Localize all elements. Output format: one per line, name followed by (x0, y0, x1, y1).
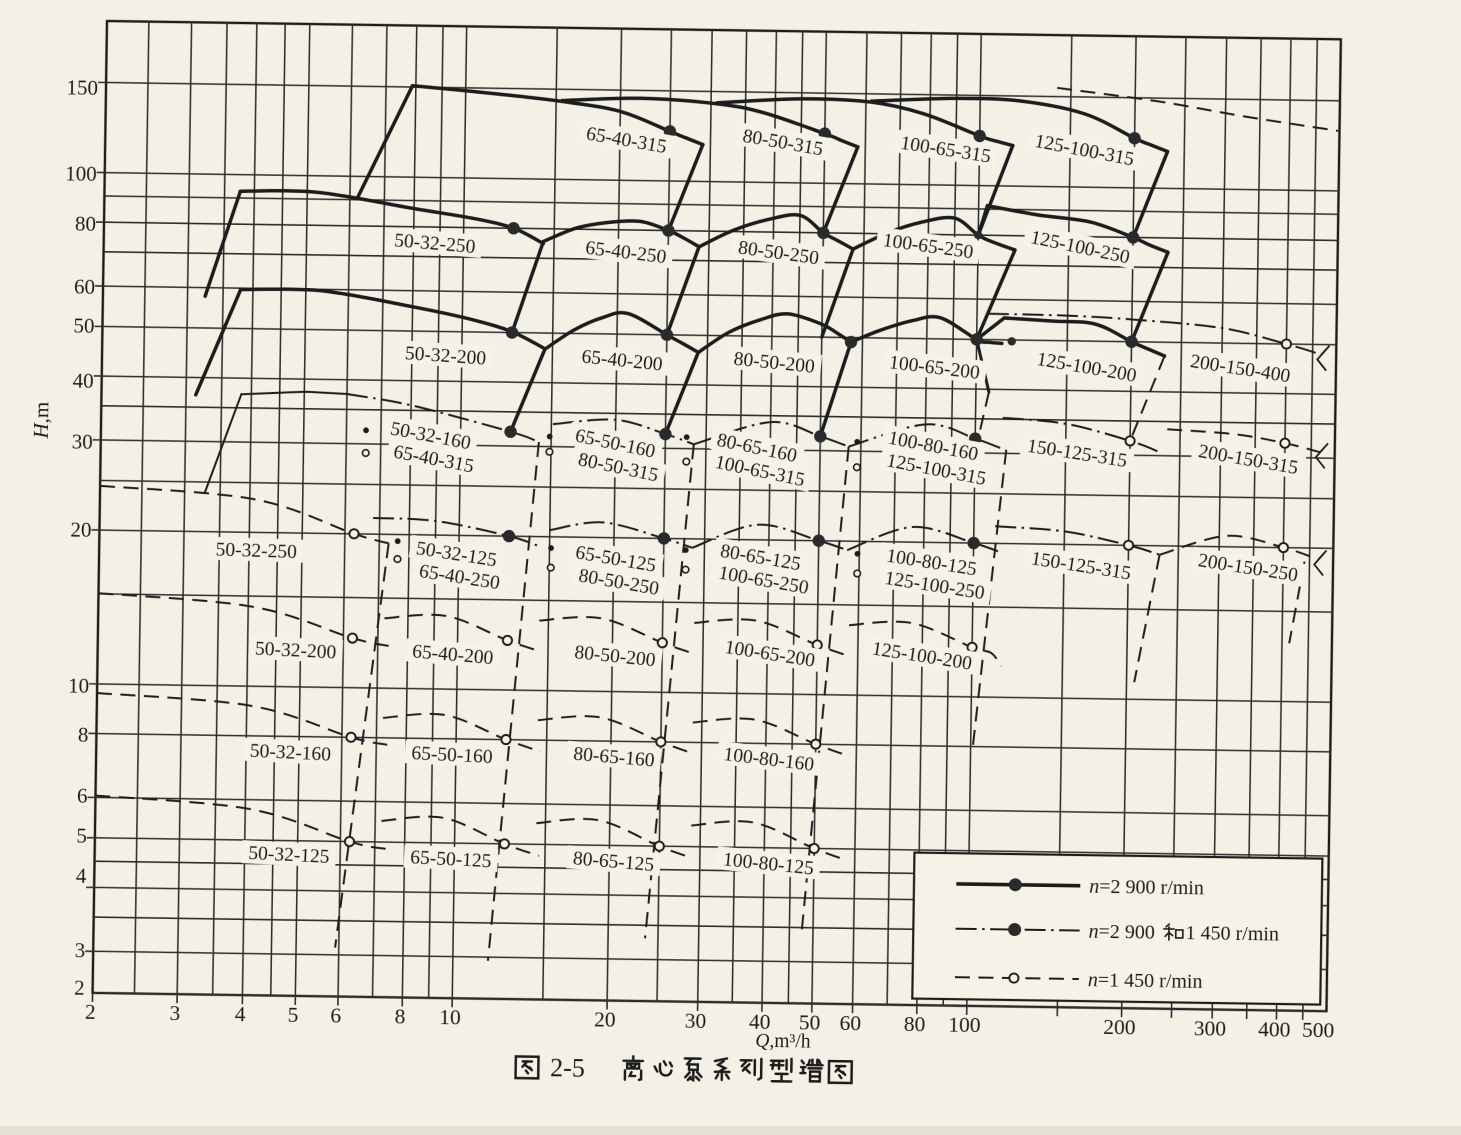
svg-text:10: 10 (68, 674, 89, 698)
svg-text:200: 200 (1103, 1015, 1136, 1039)
svg-text:50-32-200: 50-32-200 (255, 638, 337, 663)
svg-text:500: 500 (1302, 1018, 1335, 1042)
svg-text:n=2 900 r/min: n=2 900 r/min (1089, 876, 1204, 900)
svg-text:5: 5 (76, 824, 87, 848)
svg-text:400: 400 (1258, 1017, 1291, 1041)
svg-text:3: 3 (75, 938, 86, 962)
svg-text:6: 6 (330, 1003, 341, 1027)
svg-text:10: 10 (439, 1005, 461, 1029)
svg-text:8: 8 (78, 723, 89, 747)
svg-text:30: 30 (72, 430, 93, 454)
svg-text:80: 80 (904, 1012, 926, 1036)
svg-text:2: 2 (85, 1000, 96, 1024)
svg-text:50: 50 (73, 314, 94, 338)
svg-text:n=2 900: n=2 900 (1088, 921, 1155, 944)
svg-text:4: 4 (76, 864, 87, 888)
svg-text:50-32-160: 50-32-160 (249, 741, 331, 766)
svg-text:300: 300 (1194, 1016, 1227, 1040)
svg-text:1 450 r/min: 1 450 r/min (1185, 922, 1279, 945)
svg-text:Q,m³/h: Q,m³/h (755, 1031, 811, 1053)
svg-text:100: 100 (948, 1013, 981, 1037)
svg-text:60: 60 (839, 1011, 861, 1035)
svg-text:4: 4 (235, 1002, 246, 1026)
svg-text:50-32-250: 50-32-250 (215, 539, 297, 563)
svg-text:65-50-125: 65-50-125 (410, 847, 492, 872)
svg-text:150: 150 (66, 76, 98, 100)
svg-text:5: 5 (288, 1003, 299, 1027)
svg-text:2: 2 (74, 976, 85, 1000)
svg-text:40: 40 (72, 368, 93, 392)
svg-text:65-50-160: 65-50-160 (411, 743, 493, 768)
svg-text:20: 20 (70, 518, 91, 542)
svg-text:60: 60 (74, 275, 95, 299)
svg-text:2-5: 2-5 (550, 1053, 585, 1083)
svg-text:n=1 450 r/min: n=1 450 r/min (1088, 969, 1203, 993)
svg-text:100: 100 (65, 162, 97, 186)
svg-text:8: 8 (395, 1004, 406, 1028)
svg-text:6: 6 (77, 784, 88, 808)
svg-text:80: 80 (75, 212, 96, 236)
svg-text:3: 3 (169, 1001, 180, 1025)
svg-text:30: 30 (685, 1009, 707, 1033)
svg-text:H,m: H,m (29, 402, 54, 440)
svg-text:20: 20 (594, 1007, 616, 1031)
svg-text:50-32-125: 50-32-125 (248, 843, 330, 868)
